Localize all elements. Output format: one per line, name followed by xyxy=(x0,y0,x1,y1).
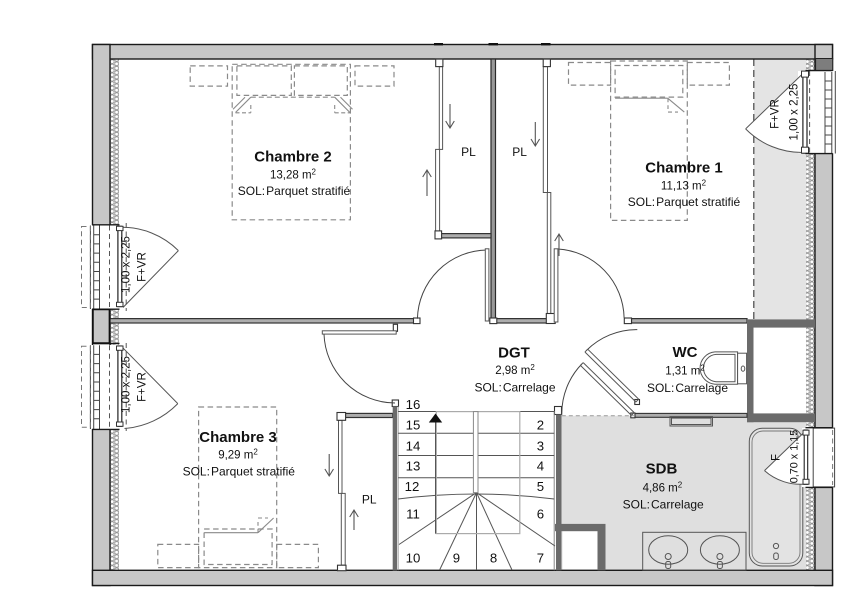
svg-text:DGT: DGT xyxy=(498,345,530,362)
svg-text:8: 8 xyxy=(490,551,497,566)
svg-text:PL: PL xyxy=(461,145,476,159)
svg-text:6: 6 xyxy=(537,507,544,522)
svg-text:SOL: Parquet stratifié: SOL: Parquet stratifié xyxy=(238,184,351,198)
svg-text:SOL: Parquet stratifié: SOL: Parquet stratifié xyxy=(628,195,741,209)
svg-text:3: 3 xyxy=(537,439,544,454)
svg-text:1,00 x 2,25: 1,00 x 2,25 xyxy=(788,84,800,141)
svg-text:WC: WC xyxy=(673,344,698,361)
svg-text:F+VR: F+VR xyxy=(136,372,148,402)
svg-text:Chambre 2: Chambre 2 xyxy=(254,149,332,166)
svg-text:11,13 m2: 11,13 m2 xyxy=(661,179,707,193)
svg-text:PL: PL xyxy=(512,145,527,159)
svg-text:0,70 x 1,15: 0,70 x 1,15 xyxy=(788,430,800,483)
svg-text:Chambre 3: Chambre 3 xyxy=(199,429,277,446)
svg-text:9,29 m2: 9,29 m2 xyxy=(218,448,258,462)
svg-text:1,31 m2: 1,31 m2 xyxy=(665,364,705,378)
svg-text:SOL: Parquet stratifié: SOL: Parquet stratifié xyxy=(183,465,296,479)
svg-text:9: 9 xyxy=(453,551,460,566)
svg-text:13,28 m2: 13,28 m2 xyxy=(270,168,317,182)
svg-text:PL: PL xyxy=(362,492,377,506)
svg-text:F+VR: F+VR xyxy=(770,99,782,129)
svg-text:15: 15 xyxy=(406,418,421,433)
svg-text:1,00 x 2,25: 1,00 x 2,25 xyxy=(121,236,133,293)
svg-text:12: 12 xyxy=(405,479,420,494)
svg-text:F: F xyxy=(770,454,782,461)
svg-text:SDB: SDB xyxy=(646,461,678,478)
svg-text:1,00 x 2,25: 1,00 x 2,25 xyxy=(121,356,133,413)
svg-text:Chambre 1: Chambre 1 xyxy=(645,160,723,177)
svg-text:10: 10 xyxy=(406,551,421,566)
svg-text:16: 16 xyxy=(406,397,421,412)
svg-text:SOL: Carrelage: SOL: Carrelage xyxy=(623,498,704,512)
svg-text:2,98 m2: 2,98 m2 xyxy=(495,363,535,377)
svg-text:F+VR: F+VR xyxy=(136,252,148,282)
svg-text:4: 4 xyxy=(537,459,544,474)
svg-text:SOL: Carrelage: SOL: Carrelage xyxy=(474,381,555,395)
svg-text:2: 2 xyxy=(537,418,544,433)
svg-text:5: 5 xyxy=(537,479,544,494)
svg-text:7: 7 xyxy=(537,551,544,566)
svg-text:13: 13 xyxy=(406,459,421,474)
svg-text:14: 14 xyxy=(406,439,421,454)
svg-text:4,86 m2: 4,86 m2 xyxy=(643,481,683,495)
svg-text:SOL: Carrelage: SOL: Carrelage xyxy=(647,381,728,395)
svg-text:11: 11 xyxy=(406,507,420,522)
